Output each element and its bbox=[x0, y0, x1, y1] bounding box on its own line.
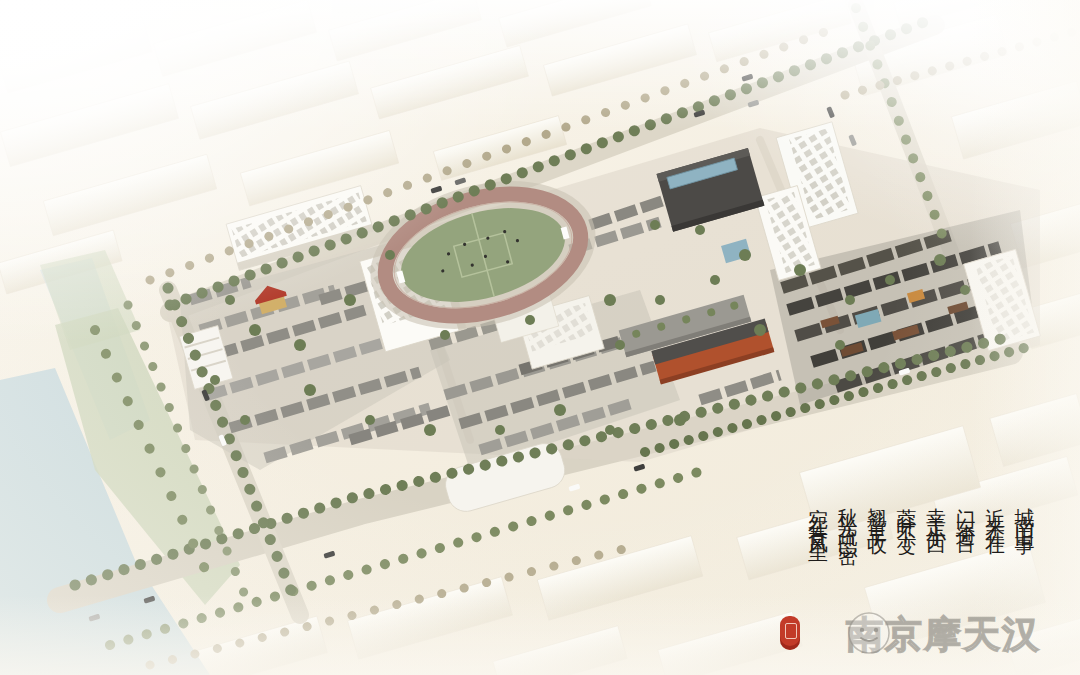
poem-column-6: 翘首丰收 bbox=[862, 492, 892, 537]
poem-column-4: 幸走小西 bbox=[921, 492, 951, 537]
poem-column-2: 近来在在 bbox=[980, 492, 1010, 537]
mascot-logo-icon bbox=[846, 610, 892, 656]
watermark: 南京摩天汉 bbox=[846, 610, 1041, 660]
poem-calligraphy: 城南旧事 近来在在 门东逾百 幸走小西 蓉叶不变 翘首丰收 秋光疏已密 宛在春风… bbox=[801, 492, 1039, 537]
poem-column-5: 蓉叶不变 bbox=[892, 492, 922, 537]
poem-column-1: 城南旧事 bbox=[1010, 492, 1040, 537]
poem-column-3: 门东逾百 bbox=[951, 492, 981, 537]
poem-column-7: 秋光疏已密 bbox=[833, 492, 863, 537]
red-seal-icon bbox=[780, 616, 800, 650]
render-scene bbox=[0, 0, 1080, 675]
poem-column-8: 宛在春风里 bbox=[803, 492, 833, 537]
aerial-render-image: 城南旧事 近来在在 门东逾百 幸走小西 蓉叶不变 翘首丰收 秋光疏已密 宛在春风… bbox=[0, 0, 1080, 675]
